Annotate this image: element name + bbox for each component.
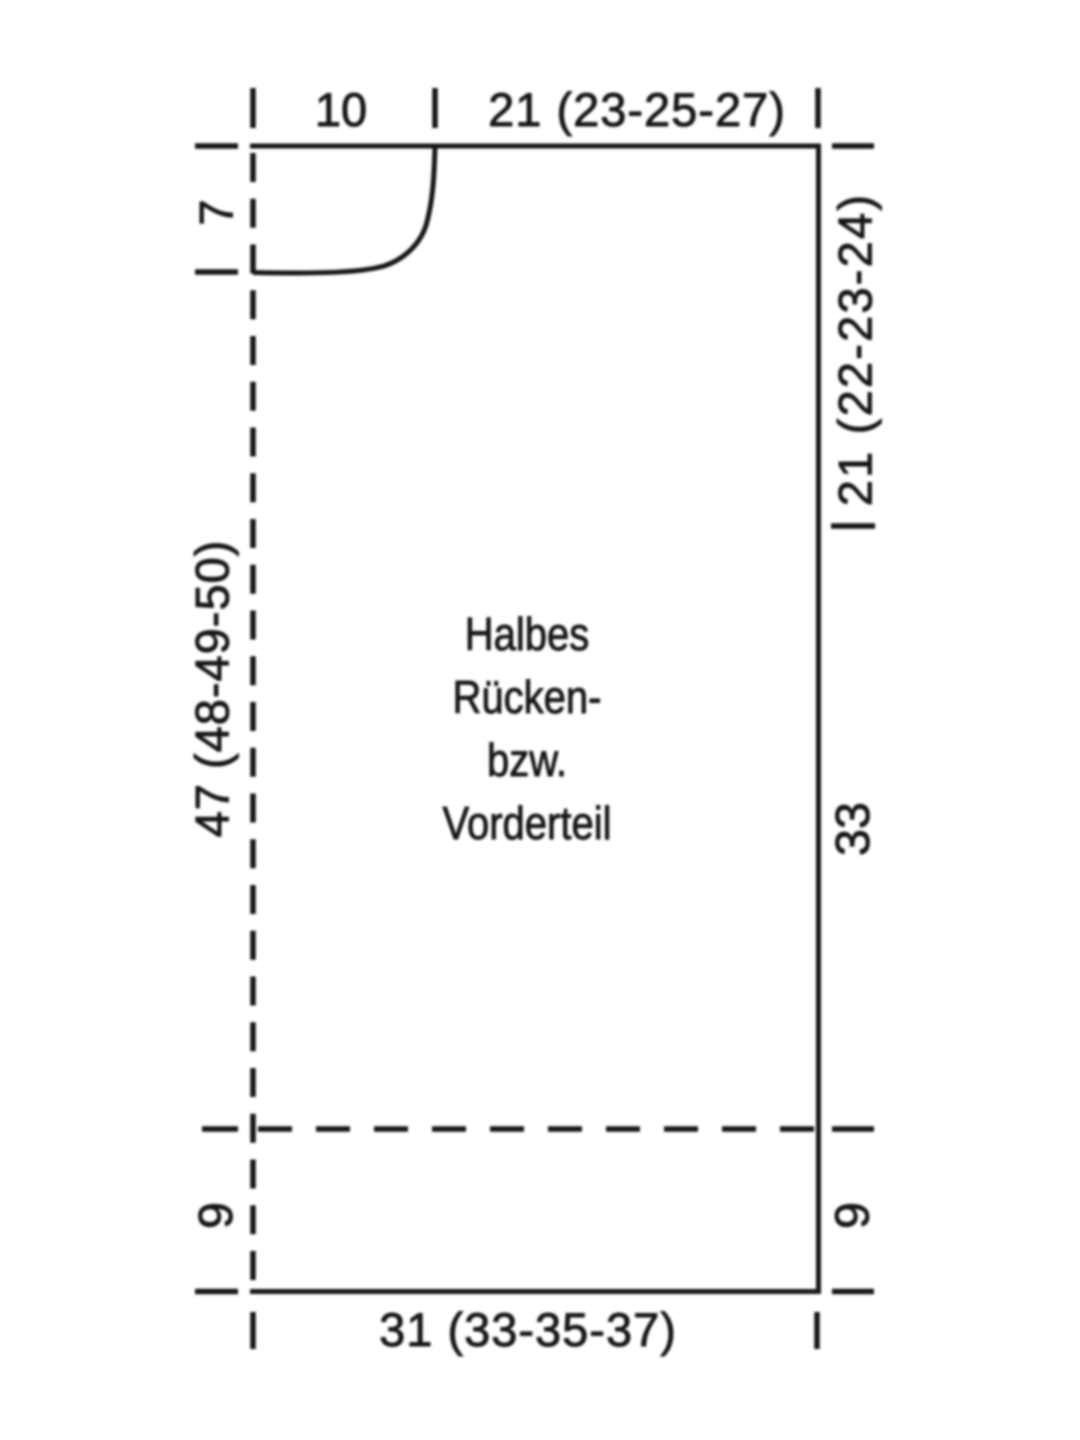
svg-text:bzw.: bzw. (487, 735, 567, 786)
svg-text:Rücken-: Rücken- (452, 672, 601, 723)
svg-text:Halbes: Halbes (465, 609, 590, 660)
svg-text:10: 10 (315, 83, 367, 136)
svg-text:47 (48-49-50): 47 (48-49-50) (186, 540, 239, 838)
svg-text:31 (33-35-37): 31 (33-35-37) (379, 1303, 677, 1356)
svg-text:Vorderteil: Vorderteil (442, 798, 611, 849)
svg-text:21 (23-25-27): 21 (23-25-27) (488, 83, 786, 136)
svg-text:9: 9 (189, 1202, 243, 1229)
svg-text:9: 9 (826, 1202, 880, 1229)
svg-text:7: 7 (190, 199, 243, 225)
svg-text:33: 33 (826, 802, 880, 856)
svg-text:21 (22-23-24): 21 (22-23-24) (829, 193, 882, 506)
